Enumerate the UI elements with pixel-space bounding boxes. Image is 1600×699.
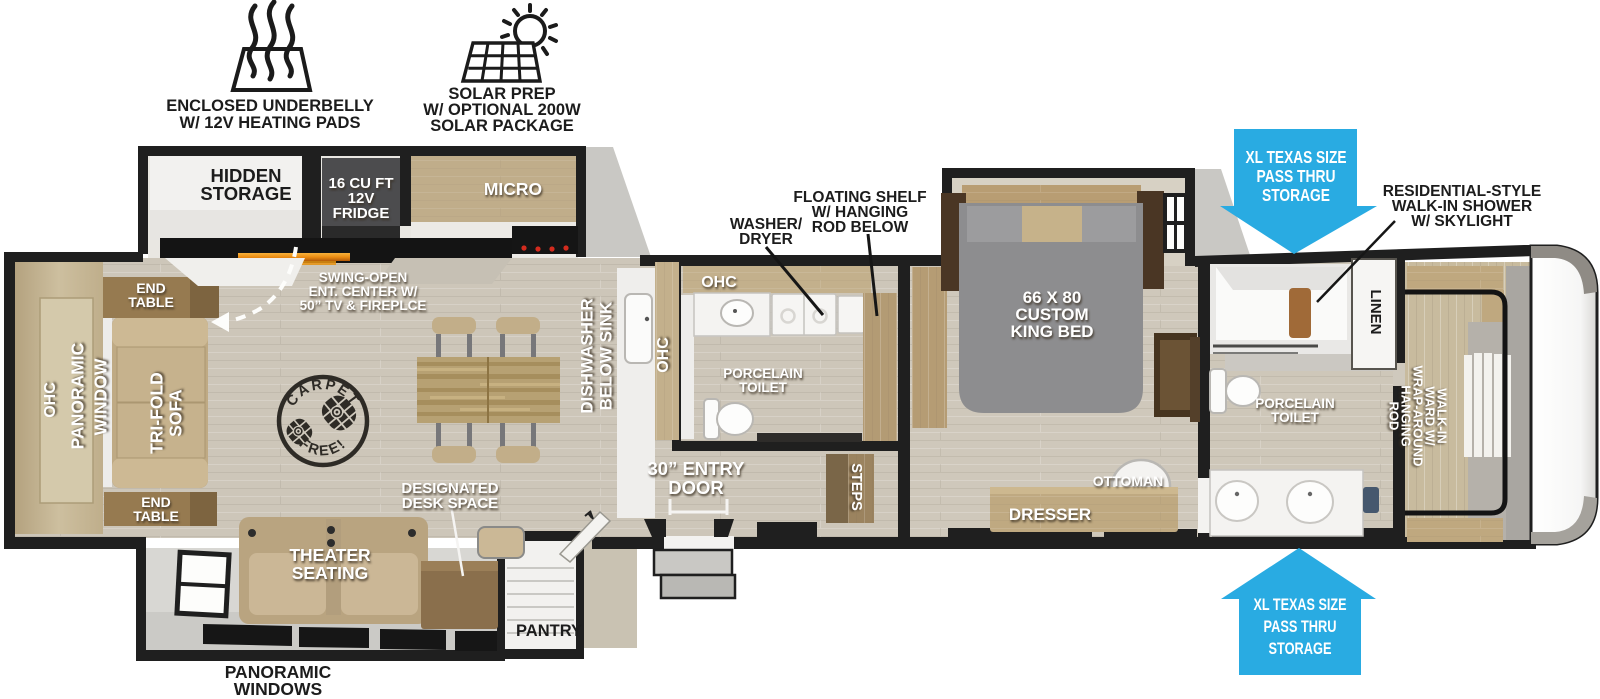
svg-text:TABLE: TABLE bbox=[133, 508, 179, 524]
svg-text:OHC: OHC bbox=[701, 274, 737, 291]
svg-text:STORAGE: STORAGE bbox=[1262, 185, 1330, 205]
svg-text:SOFA: SOFA bbox=[166, 389, 186, 437]
svg-text:TRI-FOLD: TRI-FOLD bbox=[147, 372, 167, 454]
svg-text:TABLE: TABLE bbox=[128, 294, 174, 310]
svg-text:ROD BELOW: ROD BELOW bbox=[812, 219, 909, 236]
svg-text:ENCLOSED UNDERBELLY: ENCLOSED UNDERBELLY bbox=[166, 97, 374, 115]
svg-text:THEATER: THEATER bbox=[289, 545, 371, 565]
svg-text:OHC: OHC bbox=[655, 337, 672, 373]
svg-text:SWING-OPEN: SWING-OPEN bbox=[319, 270, 408, 285]
svg-text:PORCELAIN: PORCELAIN bbox=[723, 366, 803, 381]
svg-text:W/ 12V HEATING PADS: W/ 12V HEATING PADS bbox=[180, 114, 361, 132]
svg-text:PASS THRU: PASS THRU bbox=[1257, 166, 1336, 186]
svg-text:STORAGE: STORAGE bbox=[1269, 639, 1332, 658]
svg-text:TOILET: TOILET bbox=[739, 380, 788, 395]
svg-text:PANTRY: PANTRY bbox=[516, 622, 582, 640]
svg-text:XL TEXAS SIZE: XL TEXAS SIZE bbox=[1254, 595, 1347, 614]
svg-text:XL TEXAS SIZE: XL TEXAS SIZE bbox=[1246, 147, 1347, 167]
svg-text:DESK SPACE: DESK SPACE bbox=[402, 495, 498, 512]
svg-text:BELOW SINK: BELOW SINK bbox=[596, 301, 615, 410]
svg-text:ROD: ROD bbox=[1387, 402, 1402, 431]
svg-text:STEPS: STEPS bbox=[848, 463, 864, 511]
svg-text:PASS THRU: PASS THRU bbox=[1264, 617, 1337, 636]
svg-text:LINEN: LINEN bbox=[1367, 290, 1384, 335]
svg-text:WINDOW: WINDOW bbox=[91, 358, 111, 435]
svg-text:STORAGE: STORAGE bbox=[200, 183, 291, 204]
svg-text:KING BED: KING BED bbox=[1010, 322, 1093, 341]
svg-text:PANORAMIC: PANORAMIC bbox=[68, 342, 88, 449]
svg-text:DRESSER: DRESSER bbox=[1009, 505, 1091, 524]
svg-text:WINDOWS: WINDOWS bbox=[234, 679, 322, 699]
svg-text:MICRO: MICRO bbox=[484, 179, 542, 199]
svg-text:SEATING: SEATING bbox=[292, 563, 369, 583]
svg-text:FRIDGE: FRIDGE bbox=[333, 205, 390, 222]
svg-text:SOLAR PACKAGE: SOLAR PACKAGE bbox=[430, 117, 574, 135]
svg-text:OHC: OHC bbox=[42, 382, 59, 418]
svg-text:TOILET: TOILET bbox=[1271, 410, 1320, 425]
svg-text:DRYER: DRYER bbox=[739, 231, 793, 248]
svg-text:W/ SKYLIGHT: W/ SKYLIGHT bbox=[1411, 213, 1513, 230]
svg-text:ENT. CENTER W/: ENT. CENTER W/ bbox=[309, 284, 418, 299]
svg-text:PORCELAIN: PORCELAIN bbox=[1255, 396, 1335, 411]
svg-text:30” ENTRY: 30” ENTRY bbox=[648, 458, 746, 479]
svg-text:DOOR: DOOR bbox=[668, 477, 724, 498]
svg-text:DISHWASHER: DISHWASHER bbox=[577, 298, 596, 413]
svg-text:50” TV & FIREPLCE: 50” TV & FIREPLCE bbox=[300, 298, 427, 313]
svg-text:OTTOMAN: OTTOMAN bbox=[1093, 473, 1164, 489]
